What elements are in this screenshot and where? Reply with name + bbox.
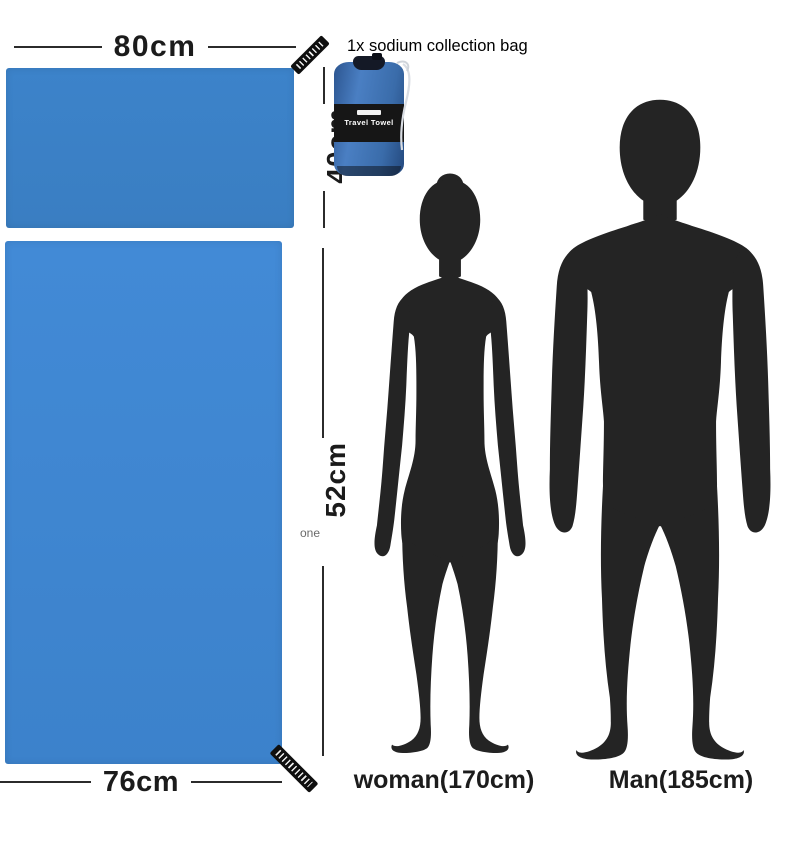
large-towel-width-label: 76cm: [91, 766, 191, 799]
large-towel-height-label: 52cm: [320, 438, 352, 526]
dimension-line: [0, 781, 91, 783]
dimension-line: [322, 566, 324, 756]
woman-height-label: woman(170cm): [349, 766, 539, 795]
man-height-label: Man(185cm): [586, 766, 776, 795]
woman-silhouette: [366, 171, 534, 758]
dimension-line: [191, 781, 282, 783]
small-towel-width-dimension: 80cm: [14, 28, 296, 66]
dimension-line: [322, 248, 324, 438]
bag-cinch-toggle: [353, 56, 385, 70]
man-silhouette: [542, 94, 778, 770]
travel-towel-bag: Travel Towel: [334, 56, 404, 176]
large-towel-width-dimension: 76cm: [0, 763, 282, 801]
small-towel-width-label: 80cm: [102, 30, 209, 64]
large-towel-height-dimension: 52cm one: [300, 248, 346, 756]
dimension-line: [323, 67, 325, 104]
bag-caption: 1x sodium collection bag: [347, 37, 528, 56]
dimension-line: [208, 46, 296, 48]
product-size-diagram: 80cm 40cm 52cm one 76cm Travel Towel 1x …: [0, 0, 790, 847]
height-note: one: [300, 526, 320, 540]
dimension-line: [323, 191, 325, 228]
large-towel-swatch: [5, 241, 282, 764]
bag-drawstring: [385, 58, 413, 170]
dimension-line: [14, 46, 102, 48]
small-towel-swatch: [6, 68, 294, 228]
bag-brand-logo: [357, 110, 381, 115]
